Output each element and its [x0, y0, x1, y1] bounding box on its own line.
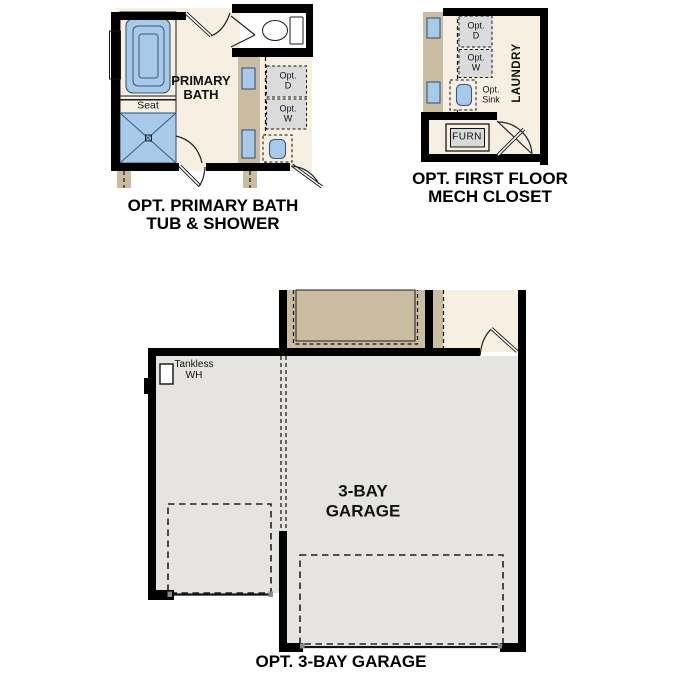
furnace-label: FURN: [452, 133, 482, 144]
garage-floor: [287, 593, 518, 645]
opt-dryer-label: Opt. D: [279, 71, 296, 90]
wall-niche: [242, 130, 255, 158]
wall-niche: [427, 82, 440, 103]
wall-niche: [427, 18, 440, 38]
opt-sink-label: Opt. Sink: [482, 85, 500, 104]
sink-fixture: [270, 140, 286, 159]
garage-room-label: 3-BAY GARAGE: [326, 482, 401, 521]
opt-washer-label: Opt. W: [467, 53, 484, 72]
seat-label: Seat: [137, 100, 159, 111]
interior-wall: [433, 290, 443, 349]
mech-closet-caption: OPT. FIRST FLOOR MECH CLOSET: [412, 170, 568, 205]
patio-walls: [287, 290, 426, 349]
tankless-water-heater-label: Tankless WH: [175, 360, 214, 382]
tankless-water-heater: [160, 364, 173, 384]
shower-fixture: [120, 113, 176, 163]
opt-dryer-label: Opt. D: [467, 21, 484, 40]
floorplan-drawing: [0, 0, 687, 687]
garage-caption: OPT. 3-BAY GARAGE: [256, 653, 427, 671]
wall-niche: [242, 68, 255, 89]
primary-bath-room-label: PRIMARY BATH: [171, 74, 230, 102]
bathtub-fixture: [126, 19, 170, 93]
primary-bath-caption: OPT. PRIMARY BATH TUB & SHOWER: [128, 197, 299, 232]
sink-fixture: [457, 85, 472, 106]
opt-washer-label: Opt. W: [279, 104, 296, 123]
floorplan-options-sheet: PRIMARY BATH Seat Opt. D Opt. W Opt. D O…: [0, 0, 687, 687]
garage-floor: [156, 356, 518, 593]
laundry-room-label: LAUNDRY: [511, 43, 523, 102]
garage-plan: [144, 290, 526, 652]
